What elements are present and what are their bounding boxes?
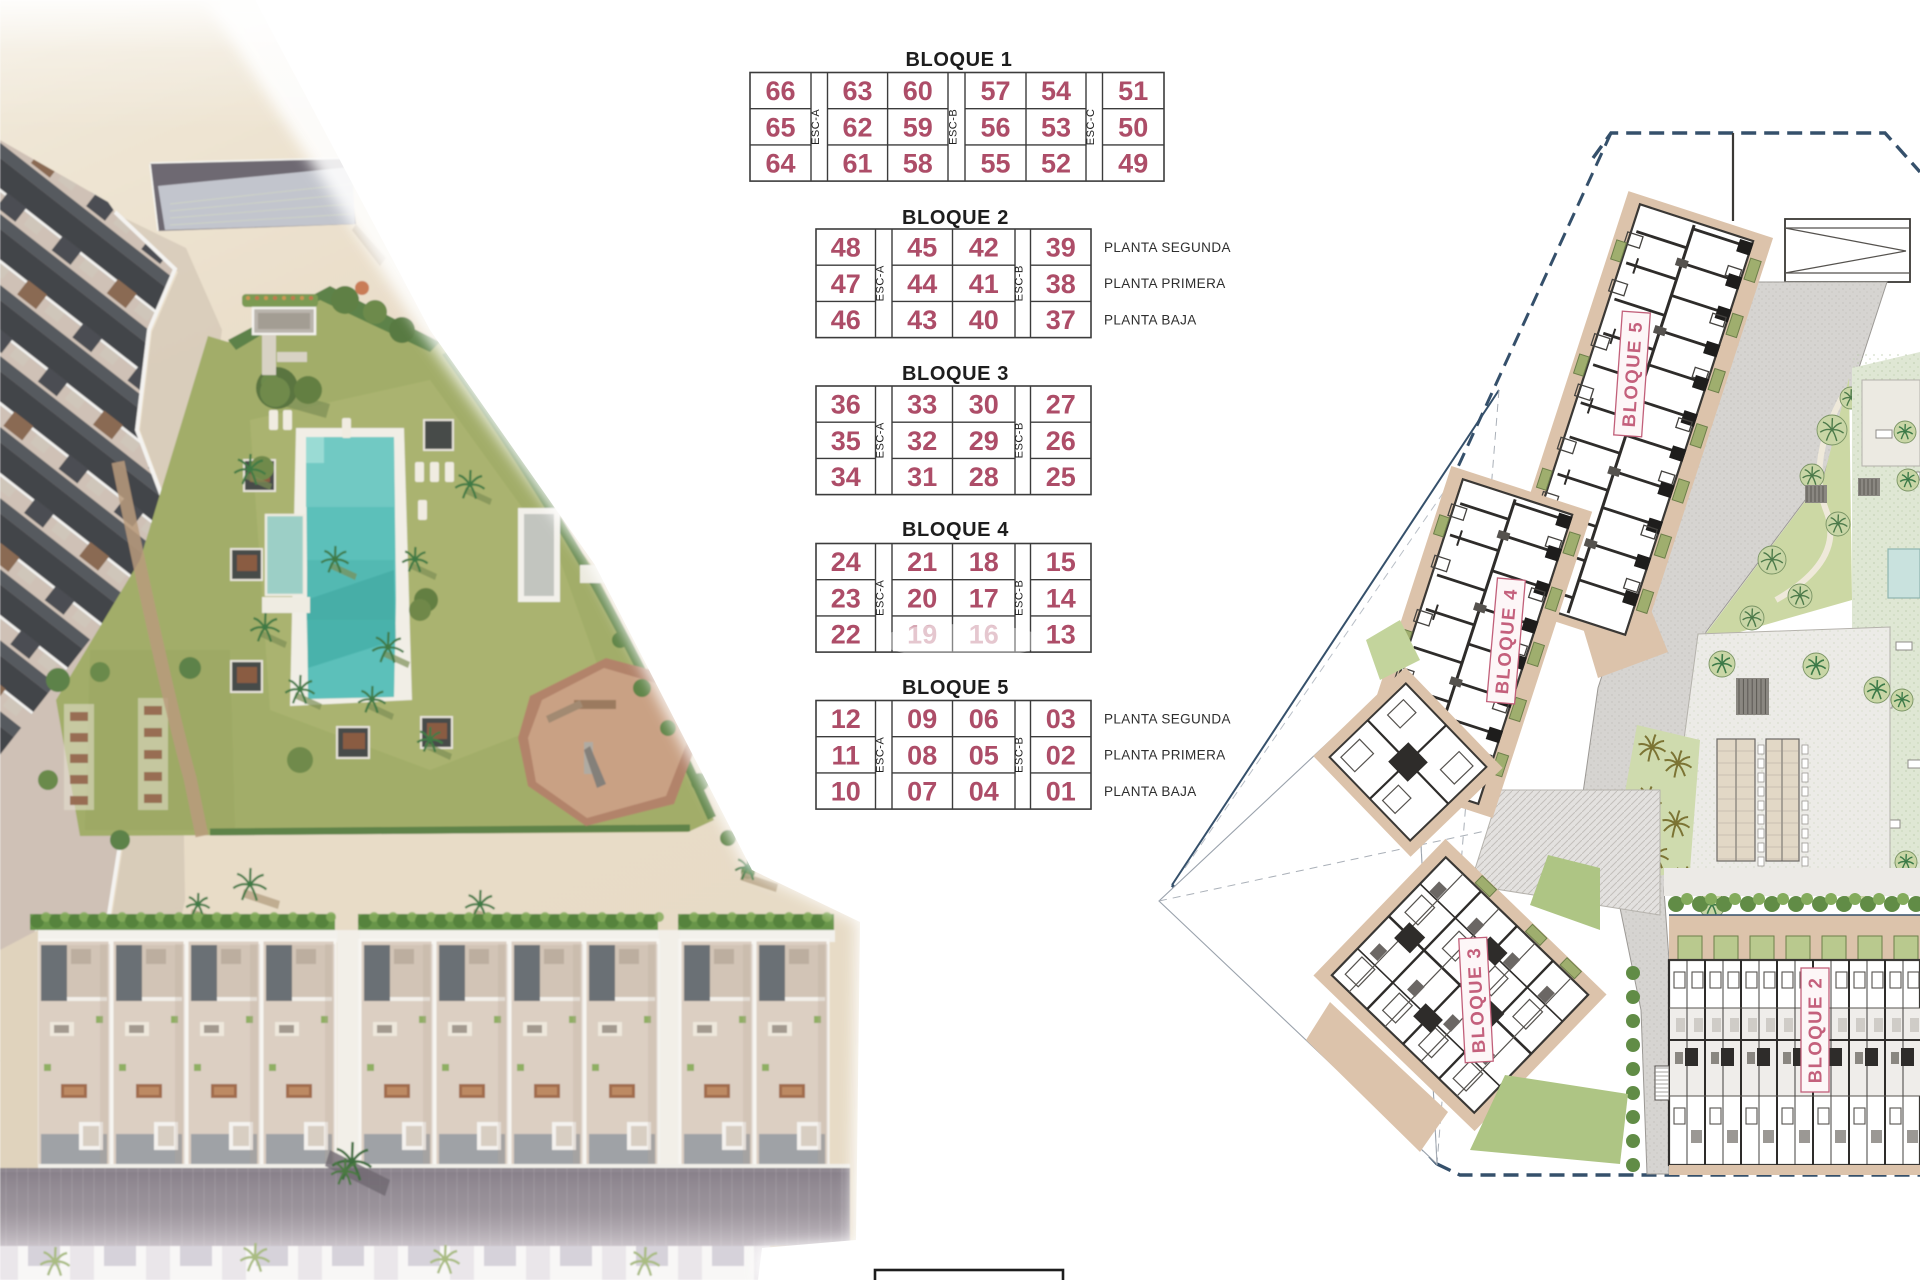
svg-text:34: 34 [831, 462, 861, 492]
svg-text:15: 15 [1046, 547, 1076, 577]
svg-text:08: 08 [907, 740, 937, 770]
svg-text:ESC-A: ESC-A [810, 109, 822, 145]
svg-text:ESC-B: ESC-B [1014, 422, 1026, 458]
svg-text:24: 24 [831, 547, 861, 577]
svg-text:60: 60 [903, 76, 933, 106]
svg-text:BLOQUE 3: BLOQUE 3 [902, 363, 1009, 385]
svg-text:26: 26 [1046, 426, 1076, 456]
svg-text:53: 53 [1041, 112, 1071, 142]
svg-text:18: 18 [969, 547, 999, 577]
svg-text:ESC-A: ESC-A [875, 422, 887, 458]
svg-text:21: 21 [907, 547, 937, 577]
svg-text:04: 04 [969, 777, 999, 807]
svg-text:BLOQUE 2: BLOQUE 2 [1805, 977, 1826, 1084]
svg-text:50: 50 [1118, 112, 1148, 142]
svg-text:PLANTA PRIMERA: PLANTA PRIMERA [1104, 276, 1226, 291]
svg-text:40: 40 [969, 305, 999, 335]
svg-text:54: 54 [1041, 76, 1071, 106]
svg-text:35: 35 [831, 426, 861, 456]
svg-text:32: 32 [907, 426, 937, 456]
svg-text:06: 06 [969, 704, 999, 734]
svg-text:23: 23 [831, 583, 861, 613]
svg-text:37: 37 [1046, 305, 1076, 335]
svg-text:BLOQUE 2: BLOQUE 2 [902, 207, 1009, 229]
svg-text:48: 48 [831, 233, 861, 263]
svg-text:PLANTA PRIMERA: PLANTA PRIMERA [1104, 748, 1226, 763]
svg-text:10: 10 [831, 777, 861, 807]
svg-text:29: 29 [969, 426, 999, 456]
svg-text:56: 56 [980, 112, 1010, 142]
svg-text:17: 17 [969, 583, 999, 613]
svg-text:33: 33 [907, 390, 937, 420]
svg-text:20: 20 [907, 583, 937, 613]
svg-text:01: 01 [1046, 777, 1076, 807]
svg-text:30: 30 [969, 390, 999, 420]
svg-text:52: 52 [1041, 149, 1071, 179]
svg-text:03: 03 [1046, 704, 1076, 734]
svg-text:61: 61 [842, 149, 872, 179]
svg-text:55: 55 [980, 149, 1010, 179]
svg-text:44: 44 [907, 269, 937, 299]
svg-text:51: 51 [1118, 76, 1148, 106]
svg-text:14: 14 [1046, 583, 1076, 613]
svg-text:02: 02 [1046, 740, 1076, 770]
svg-text:ESC-B: ESC-B [1014, 265, 1026, 301]
svg-text:BLOQUE 4: BLOQUE 4 [902, 519, 1009, 541]
svg-text:28: 28 [969, 462, 999, 492]
svg-text:PLANTA SEGUNDA: PLANTA SEGUNDA [1104, 240, 1231, 255]
svg-text:ESC-B: ESC-B [1014, 580, 1026, 616]
svg-text:38: 38 [1046, 269, 1076, 299]
svg-text:41: 41 [969, 269, 999, 299]
svg-text:63: 63 [842, 76, 872, 106]
svg-text:62: 62 [842, 112, 872, 142]
svg-text:ESC-C: ESC-C [1085, 108, 1097, 145]
svg-text:ESC-A: ESC-A [875, 737, 887, 773]
svg-text:07: 07 [907, 777, 937, 807]
svg-text:BLOQUE 5: BLOQUE 5 [902, 677, 1009, 699]
svg-text:09: 09 [907, 704, 937, 734]
svg-text:BLOQUE 1: BLOQUE 1 [905, 49, 1012, 71]
svg-text:ESC-B: ESC-B [1014, 737, 1026, 773]
svg-text:46: 46 [831, 305, 861, 335]
svg-text:ESC-A: ESC-A [875, 580, 887, 616]
svg-text:59: 59 [903, 112, 933, 142]
svg-text:36: 36 [831, 390, 861, 420]
svg-text:13: 13 [1046, 620, 1076, 650]
svg-text:ESC-B: ESC-B [948, 109, 960, 145]
svg-text:49: 49 [1118, 149, 1148, 179]
svg-text:12: 12 [831, 704, 861, 734]
svg-text:39: 39 [1046, 233, 1076, 263]
svg-text:64: 64 [765, 149, 795, 179]
svg-text:11: 11 [832, 740, 861, 770]
svg-text:58: 58 [903, 149, 933, 179]
svg-text:05: 05 [969, 740, 999, 770]
svg-text:57: 57 [980, 76, 1010, 106]
svg-text:27: 27 [1046, 390, 1076, 420]
svg-text:ESC-A: ESC-A [875, 265, 887, 301]
svg-text:43: 43 [907, 305, 937, 335]
svg-text:65: 65 [765, 112, 795, 142]
svg-text:25: 25 [1046, 462, 1076, 492]
svg-text:PLANTA BAJA: PLANTA BAJA [1104, 784, 1197, 799]
svg-text:45: 45 [907, 233, 937, 263]
svg-text:31: 31 [907, 462, 937, 492]
svg-text:66: 66 [765, 76, 795, 106]
svg-text:42: 42 [969, 233, 999, 263]
svg-text:47: 47 [831, 269, 861, 299]
svg-text:PLANTA SEGUNDA: PLANTA SEGUNDA [1104, 712, 1231, 727]
svg-text:PLANTA BAJA: PLANTA BAJA [1104, 312, 1197, 327]
svg-text:22: 22 [831, 620, 861, 650]
